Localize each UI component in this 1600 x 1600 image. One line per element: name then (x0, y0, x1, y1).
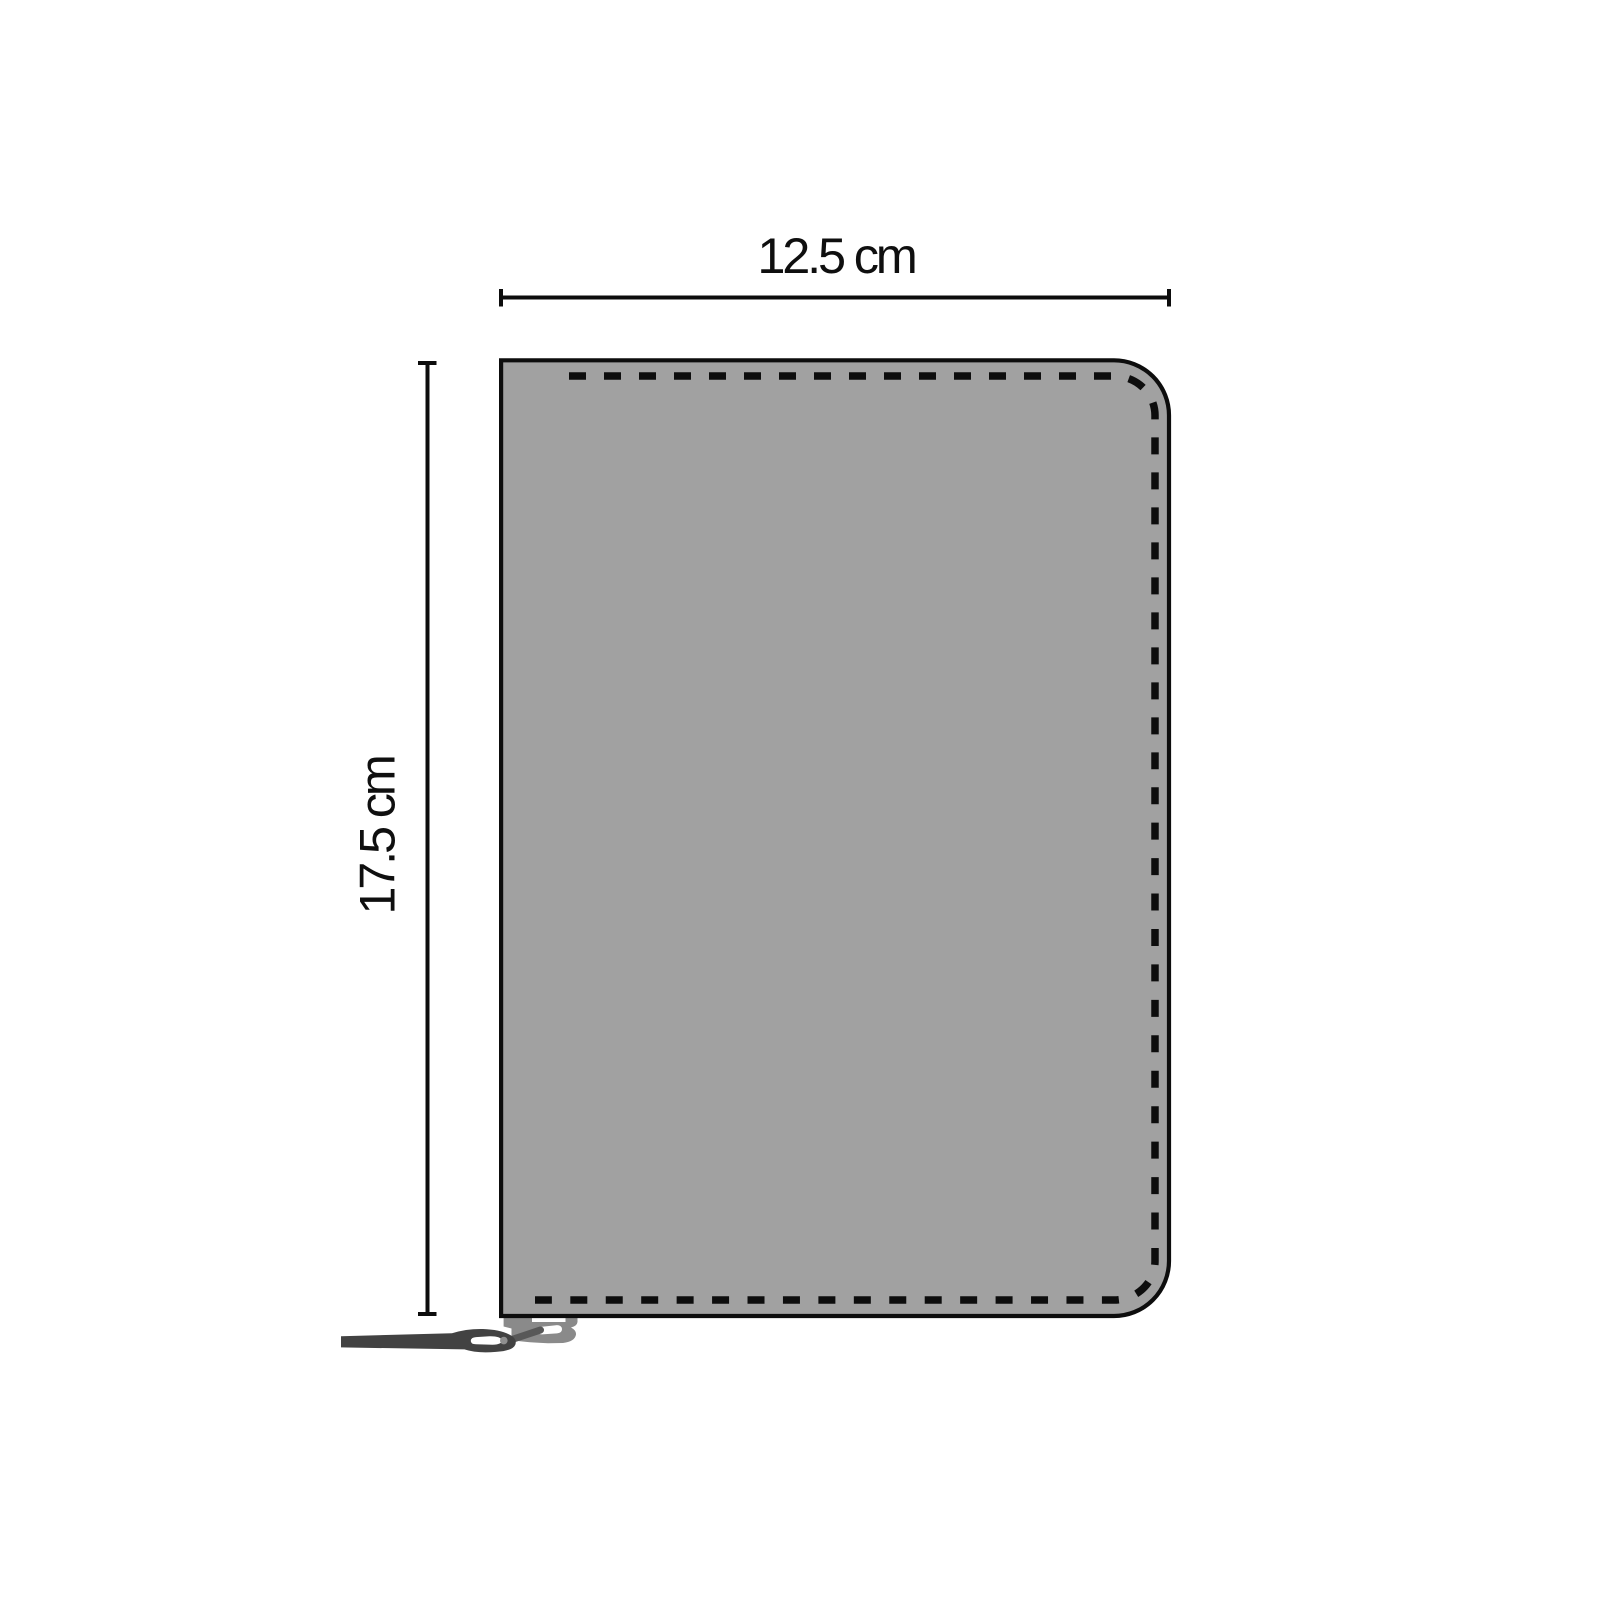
svg-text:12.5 cm: 12.5 cm (757, 227, 914, 284)
svg-text:17.5 cm: 17.5 cm (349, 757, 406, 914)
